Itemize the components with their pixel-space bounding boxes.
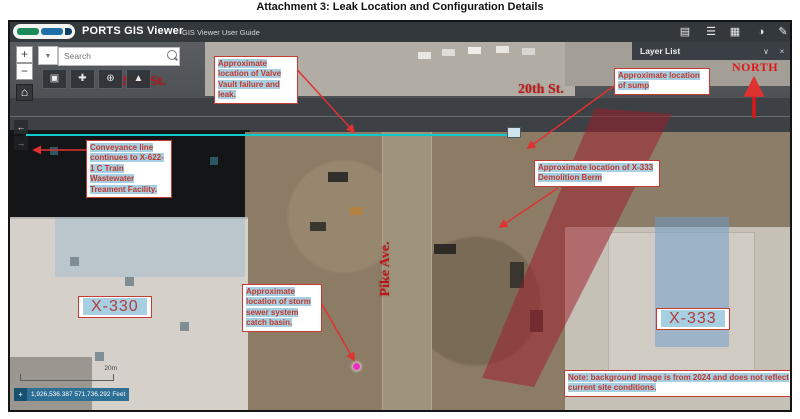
search-input[interactable] [58, 47, 180, 66]
annotation-text: Approximate location of X-333 Demolition… [538, 163, 653, 182]
building-label-x333: X-333 [656, 308, 730, 330]
basemap-tool-icon[interactable]: ▣ [42, 69, 67, 89]
layers-icon[interactable]: ▤ [674, 24, 696, 40]
add-data-tool-icon[interactable]: ✚ [70, 69, 95, 89]
annotation-text: Conveyance line continues to X-622-1 C T… [90, 143, 164, 194]
document-page: Attachment 3: Leak Location and Configur… [0, 0, 800, 419]
legend-icon[interactable]: ☰ [700, 24, 722, 40]
crosshair-icon[interactable]: + [14, 388, 27, 401]
pencil-icon[interactable]: ✎ [772, 24, 792, 40]
berm-arrow [500, 188, 558, 227]
building-label-x330: X-330 [78, 296, 152, 318]
panel-collapse-left-icon[interactable]: ← [14, 120, 28, 134]
annotation-text: Approximate location of sump [618, 71, 700, 90]
logo-mark [17, 28, 39, 35]
annotation-sump: Approximate location of sump [614, 68, 710, 95]
panel-expand-right-icon[interactable]: → [14, 136, 28, 150]
zoom-box-tool-icon[interactable]: ⊕ [98, 69, 123, 89]
building-label-text: X-333 [661, 310, 725, 327]
annotation-text: Approximate location of Valve Vault fail… [218, 59, 281, 99]
app-header-bar: PORTS GIS Viewer GIS Viewer User Guide ▤… [10, 22, 790, 42]
user-guide-link[interactable]: GIS Viewer User Guide [182, 28, 260, 37]
gis-viewer-frame: Approximate location of Valve Vault fail… [8, 20, 792, 412]
valve-vault-arrow [292, 64, 354, 132]
scale-label: 20m [104, 365, 117, 372]
layer-list-title: Layer List [632, 46, 758, 56]
annotation-conveyance: Conveyance line continues to X-622-1 C T… [86, 140, 172, 198]
sump-arrow [528, 86, 614, 148]
site-logo [13, 24, 75, 39]
building-label-text: X-330 [83, 298, 147, 315]
home-button[interactable]: ⌂ [16, 84, 33, 101]
search-source-dropdown[interactable]: ▼ [38, 46, 58, 65]
logo-mark [41, 28, 63, 35]
layer-list-panel-header: Layer List ∨ × [632, 42, 790, 60]
page-title: Attachment 3: Leak Location and Configur… [0, 1, 800, 13]
collapse-panel-icon[interactable]: ∨ [758, 47, 774, 56]
route-tool-icon[interactable]: ▲ [126, 69, 151, 89]
annotation-text: Note: background image is from 2024 and … [568, 373, 789, 392]
search-box [58, 46, 180, 65]
logo-mark [65, 28, 72, 35]
search-icon[interactable] [167, 50, 177, 60]
zoom-out-button[interactable]: − [16, 63, 33, 80]
close-panel-icon[interactable]: × [774, 47, 790, 56]
app-title: PORTS GIS Viewer [82, 25, 183, 37]
coordinate-widget: + 1,926,536.387 571,736.292 Feet [14, 388, 129, 401]
annotation-note: Note: background image is from 2024 and … [564, 370, 792, 397]
north-label: NORTH [732, 60, 778, 75]
scale-bar: 20m [20, 374, 114, 381]
zoom-in-button[interactable]: + [16, 46, 33, 63]
annotation-catch-basin: Approximate location of storm sewer syst… [242, 284, 322, 332]
coordinate-readout: 1,926,536.387 571,736.292 Feet [27, 388, 129, 401]
annotation-valve-vault: Approximate location of Valve Vault fail… [214, 56, 298, 104]
map-toolbar: ▣ ✚ ⊕ ▲ [42, 69, 151, 89]
annotation-berm: Approximate location of X-333 Demolition… [534, 160, 660, 187]
annotation-text: Approximate location of storm sewer syst… [246, 287, 311, 327]
palette-icon[interactable]: ◑ [750, 24, 772, 40]
basemap-gallery-icon[interactable]: ▦ [724, 24, 746, 40]
